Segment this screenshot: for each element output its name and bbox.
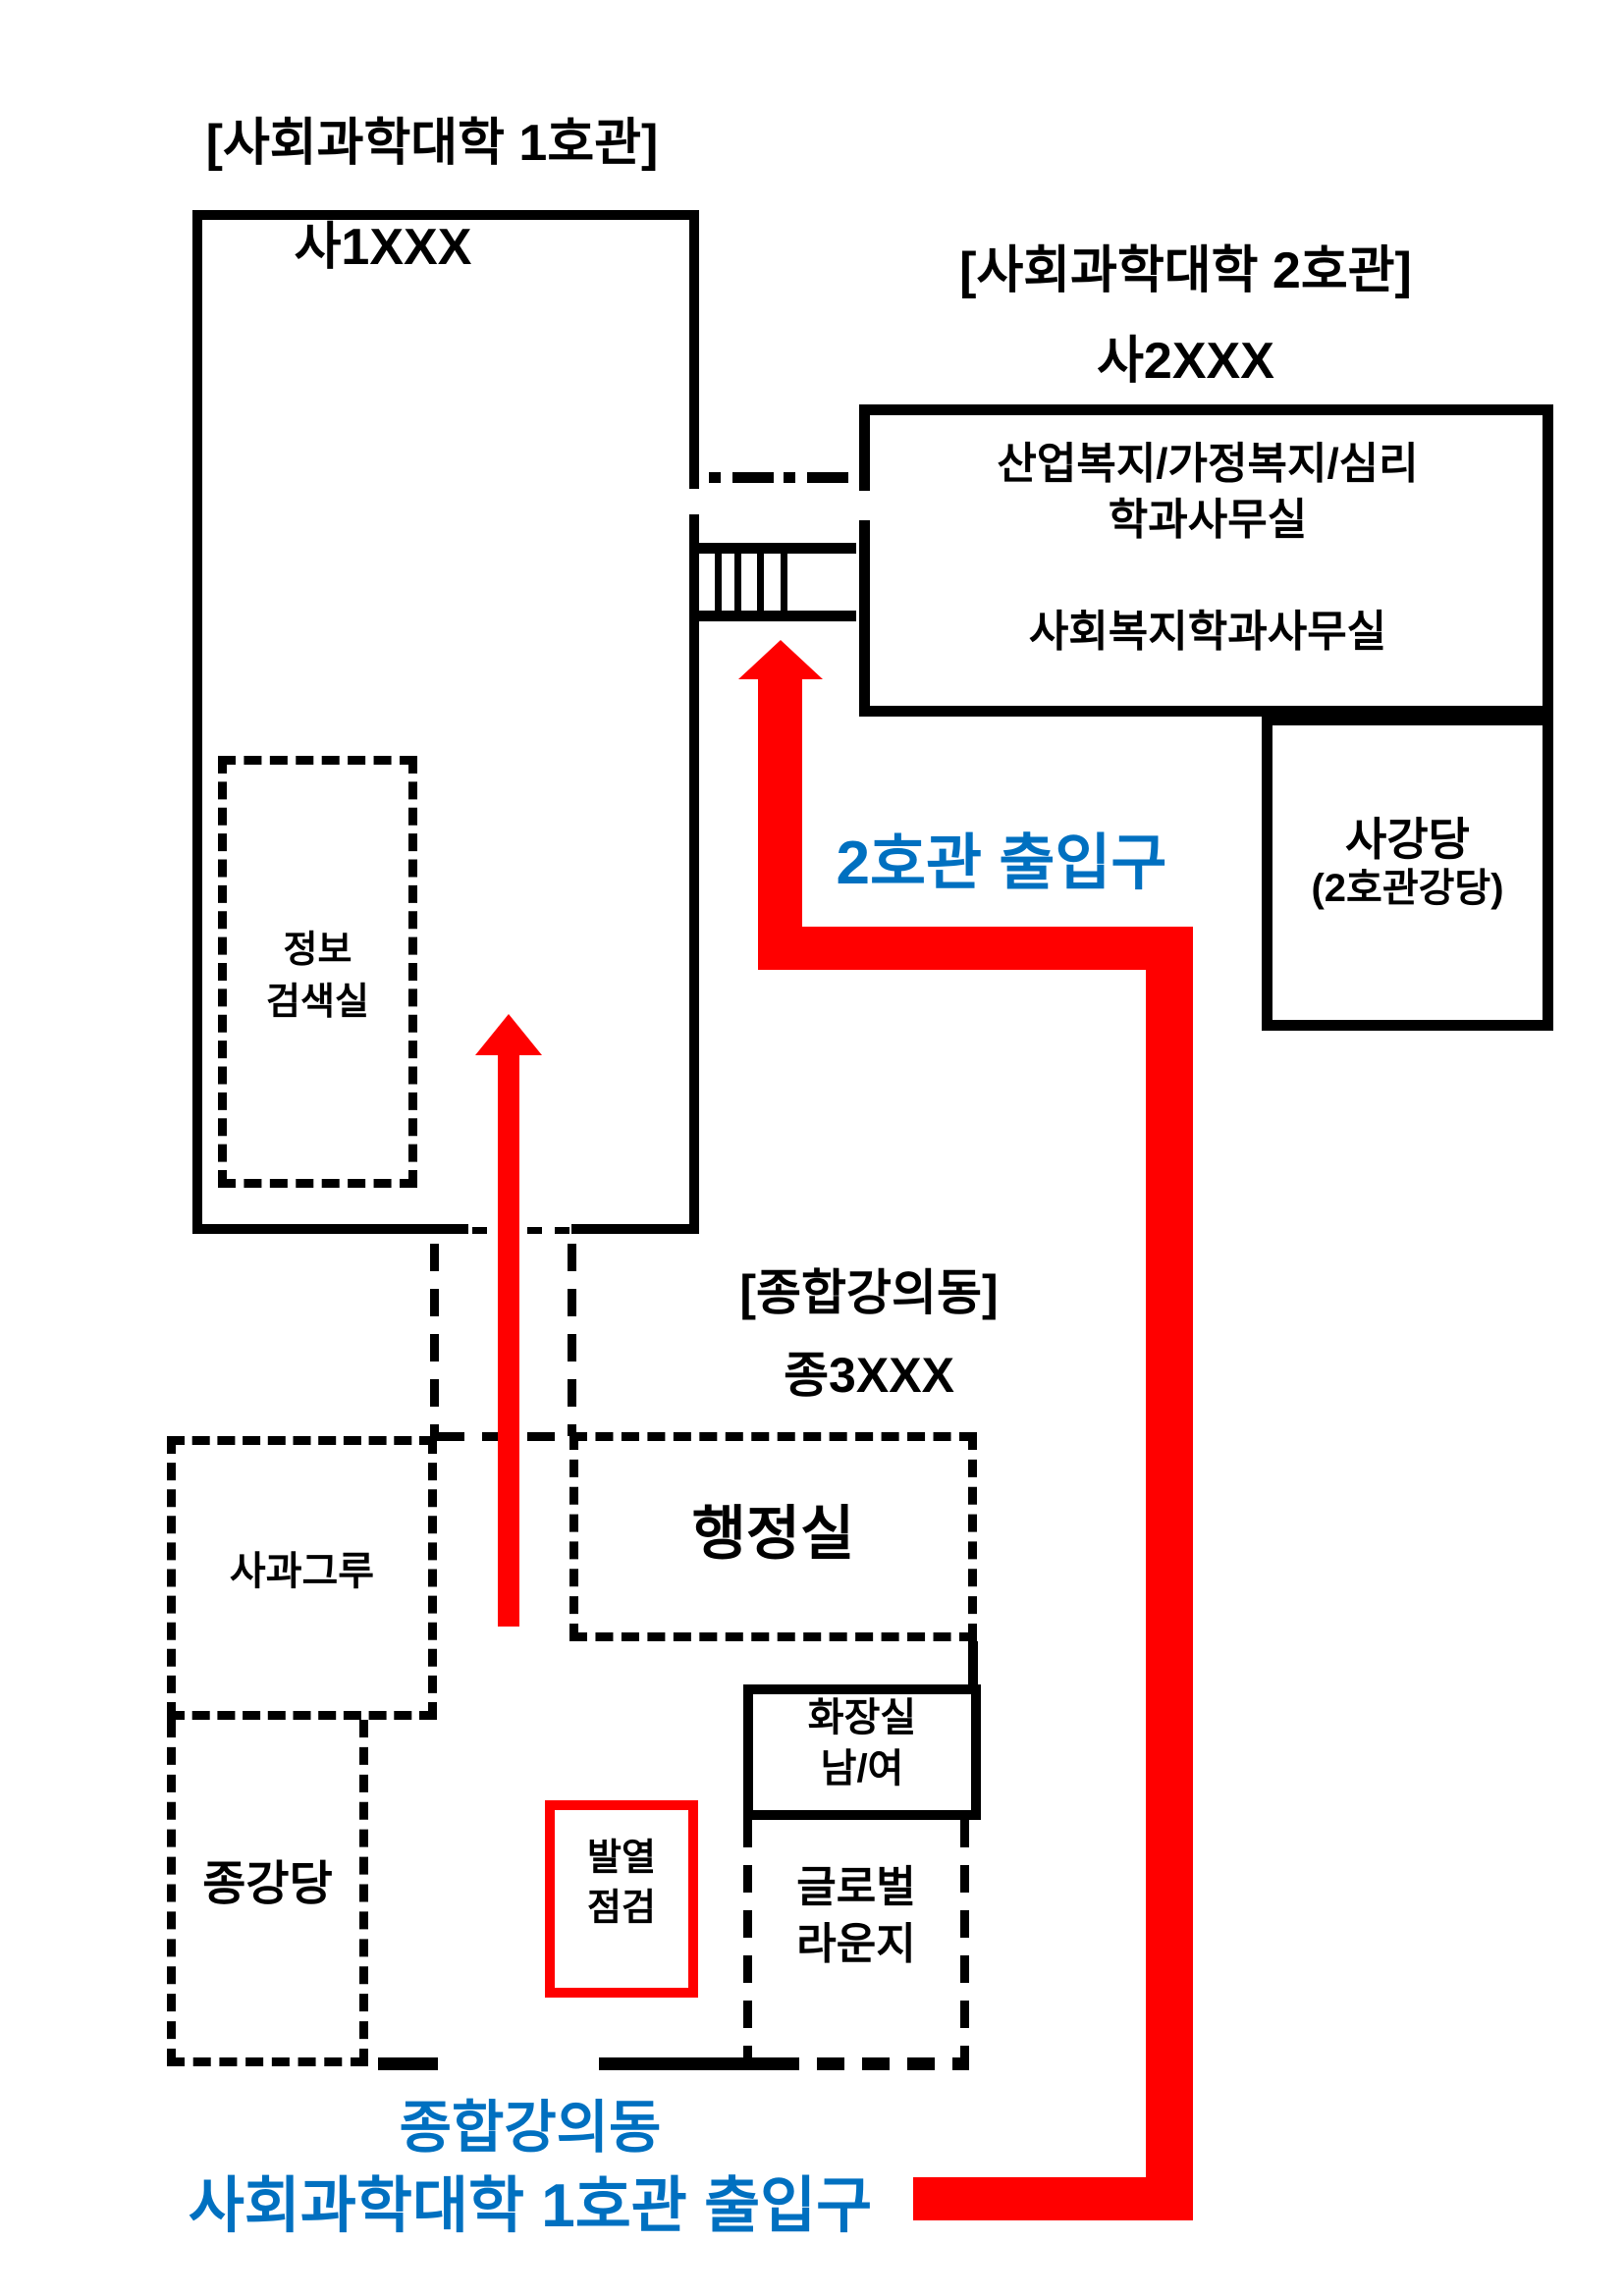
building1-title: [사회과학대학 1호관] bbox=[137, 114, 727, 174]
south-wall-solid-a bbox=[378, 2057, 438, 2070]
building1-wall-left bbox=[192, 210, 202, 1234]
building2-code: 사2XXX bbox=[839, 332, 1532, 392]
dept-office-line2: 학과사무실 bbox=[869, 492, 1546, 548]
stair-tread-3 bbox=[757, 554, 764, 611]
dept-office-line1: 산업복지/가정복지/심리 bbox=[869, 436, 1546, 492]
lounge-line1: 글로벌 bbox=[743, 1859, 969, 1916]
bridge-dashdot-line bbox=[699, 472, 856, 483]
building2-dept-office-label: 산업복지/가정복지/심리 학과사무실 bbox=[869, 436, 1546, 548]
restroom-line1: 화장실 bbox=[743, 1692, 981, 1743]
admin-office-label: 행정실 bbox=[569, 1500, 977, 1570]
auditorium2-line2: (2호관강당) bbox=[1262, 866, 1553, 912]
lecture-building-code: 종3XXX bbox=[658, 1347, 1080, 1405]
main-entrance-line2: 사회과학대학 1호관 출입구 bbox=[118, 2166, 943, 2247]
south-wall-dash-right bbox=[772, 2057, 969, 2070]
fever-check-line2: 점검 bbox=[545, 1884, 698, 1934]
info-search-room-label: 정보 검색실 bbox=[218, 925, 417, 1029]
lounge-label: 글로벌 라운지 bbox=[743, 1859, 969, 1973]
auditorium2-label: 사강당 (2호관강당) bbox=[1262, 813, 1553, 912]
corridor-arrow-shaft bbox=[498, 1053, 519, 1627]
building1-wall-right-lower bbox=[689, 514, 699, 1234]
main-entrance-label: 종합강의동 사회과학대학 1호관 출입구 bbox=[118, 2091, 943, 2246]
stair-tread-2 bbox=[734, 554, 741, 611]
info-search-room-line1: 정보 bbox=[218, 925, 417, 977]
building1-wall-bottom-right bbox=[571, 1224, 699, 1234]
building1-wall-right-upper bbox=[689, 210, 699, 489]
building1-south-door-marks bbox=[472, 1227, 570, 1234]
building1-wall-bottom-left bbox=[192, 1224, 468, 1234]
jong-auditorium-label: 종강당 bbox=[167, 1857, 368, 1913]
lecture-building-title: [종합강의동] bbox=[658, 1264, 1080, 1322]
campus-floor-map: [사회과학대학 1호관] 사1XXX 정보 검색실 [사회과학대학 2호관] 사… bbox=[0, 0, 1624, 2296]
building2-welfare-office-label: 사회복지학과사무실 bbox=[869, 607, 1546, 658]
corridor-dash-right bbox=[568, 1244, 576, 1436]
auditorium2-line1: 사강당 bbox=[1262, 813, 1553, 866]
info-search-room-line2: 검색실 bbox=[218, 977, 417, 1029]
route-horizontal-bottom bbox=[913, 2177, 1193, 2220]
fever-check-label: 발열 점검 bbox=[545, 1834, 698, 1935]
fever-check-line1: 발열 bbox=[545, 1834, 698, 1884]
route-horizontal-upper bbox=[758, 927, 1193, 970]
south-wall-solid-b bbox=[599, 2057, 772, 2070]
building1-code: 사1XXX bbox=[137, 218, 628, 278]
admin-restroom-connector bbox=[968, 1641, 978, 1684]
main-entrance-line1: 종합강의동 bbox=[118, 2091, 943, 2166]
corridor-dash-left bbox=[430, 1244, 439, 1436]
grove-room-label: 사과그루 bbox=[167, 1549, 437, 1595]
stair-tread-1 bbox=[715, 554, 722, 611]
stair-tread-4 bbox=[781, 554, 787, 611]
restroom-line2: 남/여 bbox=[743, 1743, 981, 1794]
bldg2-entrance-label: 2호관 출입구 bbox=[795, 828, 1208, 899]
restroom-label: 화장실 남/여 bbox=[743, 1692, 981, 1794]
building2-title: [사회과학대학 2호관] bbox=[839, 241, 1532, 301]
route2-arrowhead bbox=[738, 640, 823, 679]
stairs-bottom-line bbox=[699, 611, 856, 621]
stairs-top-line bbox=[699, 543, 856, 554]
lounge-line2: 라운지 bbox=[743, 1916, 969, 1973]
route-vertical-right bbox=[1146, 927, 1193, 2220]
corridor-arrowhead bbox=[475, 1014, 542, 1055]
